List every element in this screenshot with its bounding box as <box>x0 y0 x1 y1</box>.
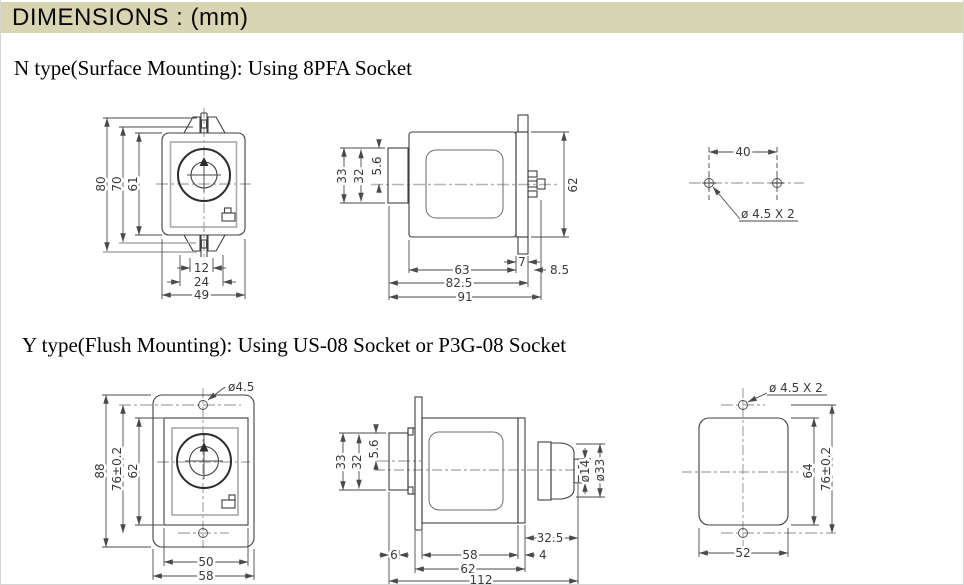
dim-body-width: 50 <box>198 555 213 569</box>
dim-body-height: 61 <box>126 176 140 191</box>
dim-plug-dia: ø14 <box>578 460 592 483</box>
dim-pin-depth: 8.5 <box>550 263 569 277</box>
collar-notch-top <box>408 428 413 435</box>
dim-plate-depth: 4 <box>539 548 547 562</box>
dim-hook-span: 70 <box>110 176 124 191</box>
socket-body <box>551 443 574 499</box>
mounting-plate-top-tab <box>518 115 528 132</box>
dim-flange-width: 58 <box>198 569 213 583</box>
dim-knob-offset: 5.6 <box>367 439 381 458</box>
dim-body-width: 49 <box>194 288 209 302</box>
n-type-mounting-holes: 40 ø 4.5 X 2 <box>689 145 804 221</box>
dim-knob-dia: 33 <box>335 168 349 183</box>
dim-depth-with-bracket: 82.5 <box>446 276 473 290</box>
dim-socket-dia: ø33 <box>593 459 607 482</box>
indicator-icon <box>222 500 235 508</box>
dim-overall-depth: 112 <box>470 573 493 585</box>
indicator-icon-top <box>229 495 235 500</box>
dim-overall-height: 88 <box>93 463 107 478</box>
dim-knob-offset: 5.6 <box>370 156 384 175</box>
y-type-side-view: 33 32 5.6 ø14 ø33 6 58 4 32.5 <box>334 397 607 585</box>
collar-notch-bottom <box>408 487 413 494</box>
dim-knob-dia: 33 <box>334 454 348 469</box>
mounting-plate-bottom-tab <box>518 237 528 254</box>
body-window <box>429 432 503 510</box>
dim-body-height: 62 <box>126 463 140 478</box>
socket-knurled-ring <box>538 442 551 500</box>
n-type-side-view: 33 32 5.6 62 63 7 8.5 82.5 91 <box>335 115 580 304</box>
terminal-pin <box>528 191 537 197</box>
hole-size-note: ø 4.5 X 2 <box>769 381 823 395</box>
panel-cutout-outline <box>699 418 788 525</box>
dim-hole-pitch: 76±0.2 <box>110 447 124 491</box>
dim-knob-depth: 6 <box>390 548 398 562</box>
dim-overall-height: 80 <box>94 176 108 191</box>
dim-hook-width: 24 <box>194 275 209 289</box>
y-type-front-view: ø4.5 88 76±0.2 62 50 58 <box>93 380 254 583</box>
hole-size-note: ø4.5 <box>228 380 254 394</box>
datasheet-page: DIMENSIONS : (mm) N type(Surface Mountin… <box>0 0 964 585</box>
terminal-pin <box>528 171 537 177</box>
dim-overall-depth: 91 <box>457 290 472 304</box>
n-type-front-view: 80 70 61 12 24 49 <box>94 108 251 302</box>
dim-cutout-width: 52 <box>735 546 750 560</box>
dim-bracket-depth: 7 <box>518 255 526 269</box>
setting-knob <box>388 148 408 203</box>
hole-size-note: ø 4.5 X 2 <box>741 207 795 221</box>
dim-knob-inner: 32 <box>350 454 364 469</box>
relay-body-outline <box>422 418 518 523</box>
indicator-icon-top <box>225 208 232 213</box>
indicator-icon <box>222 213 235 221</box>
dim-cutout-height: 64 <box>801 463 815 478</box>
y-type-panel-cutout: ø 4.5 X 2 64 76±0.2 52 <box>682 381 836 560</box>
dim-body-depth: 58 <box>462 548 477 562</box>
dim-notch-width: 12 <box>194 261 209 275</box>
dim-hole-pitch: 76±0.2 <box>819 447 833 491</box>
dim-knob-inner: 32 <box>352 168 366 183</box>
dim-body-depth: 63 <box>454 263 469 277</box>
bottom-hook-right <box>208 235 225 251</box>
flange-plate <box>415 397 422 530</box>
dial-pointer-icon <box>200 157 209 166</box>
top-hook-left <box>184 117 200 133</box>
back-plate <box>518 418 525 523</box>
dim-socket-depth: 32.5 <box>537 531 564 545</box>
dimension-drawings: 80 70 61 12 24 49 <box>1 0 964 585</box>
dim-hole-pitch: 40 <box>735 145 750 159</box>
top-hook-right <box>208 117 225 133</box>
dim-body-height: 62 <box>566 177 580 192</box>
